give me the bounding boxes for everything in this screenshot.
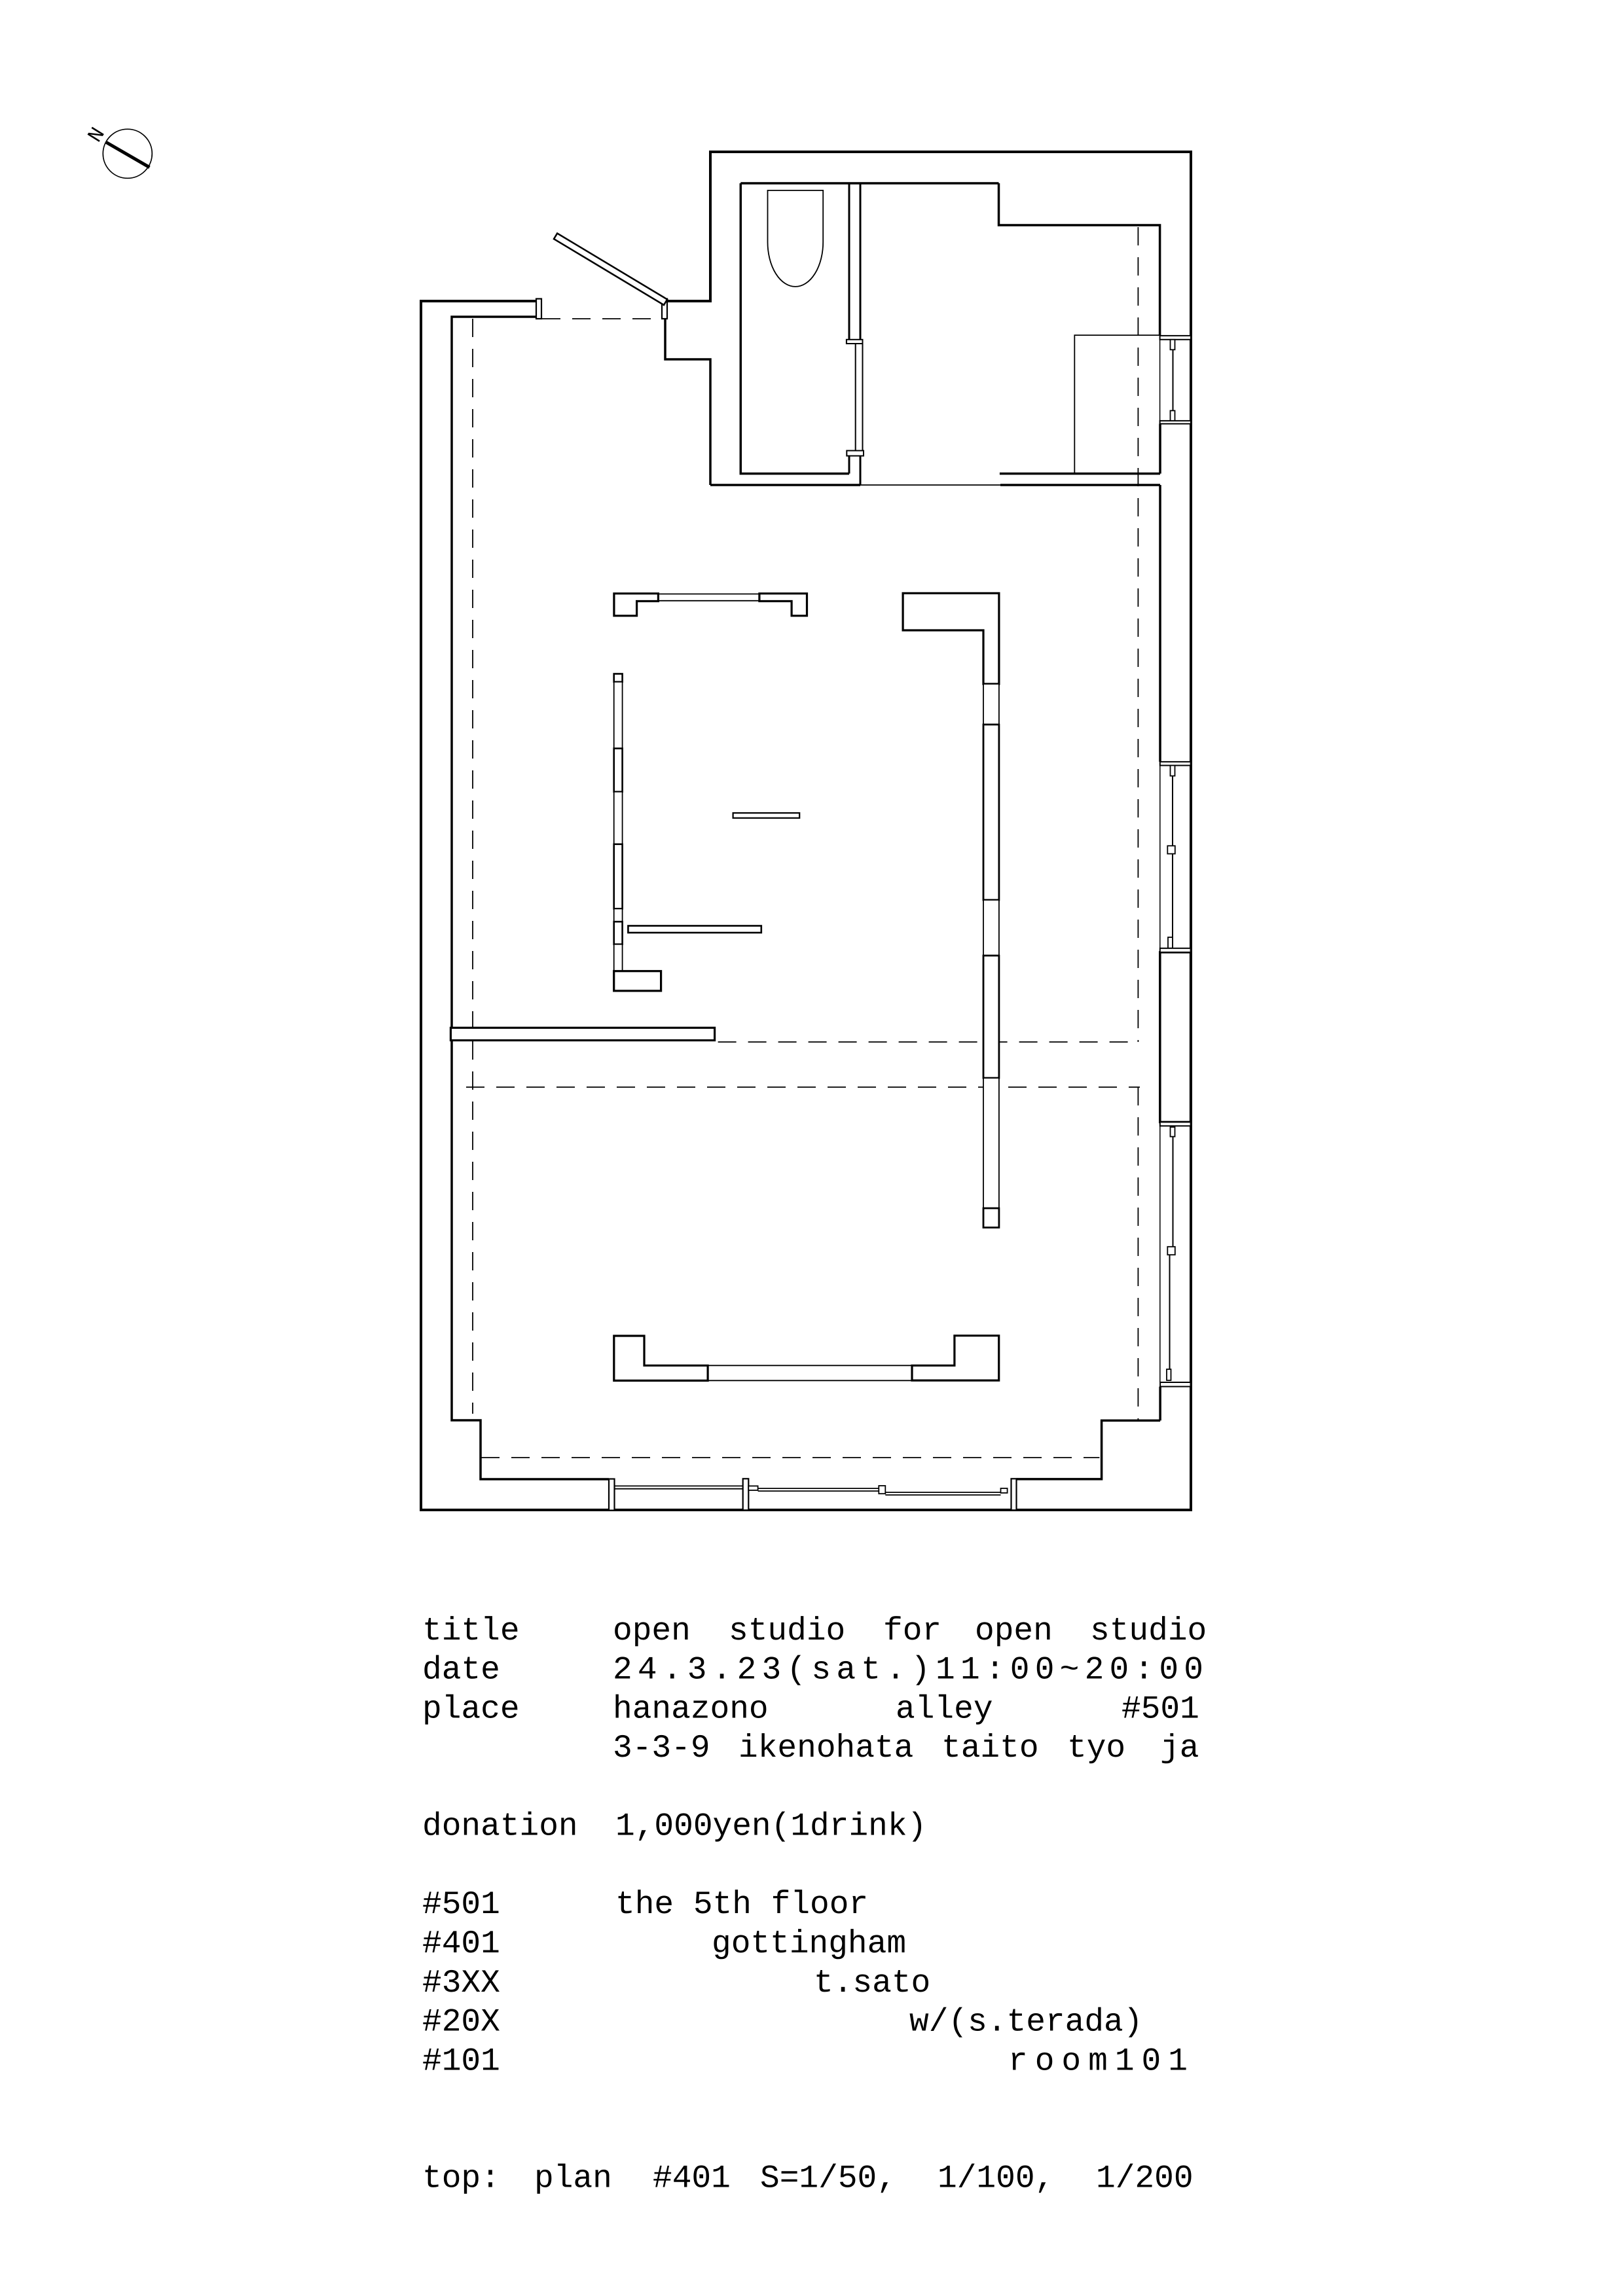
svg-text:w/(s.terada): w/(s.terada) xyxy=(909,2004,1142,2041)
svg-text:S=1/50,: S=1/50, xyxy=(760,2161,896,2197)
svg-text:place: place xyxy=(422,1691,520,1727)
svg-text:#501: #501 xyxy=(422,1886,500,1923)
svg-text:hanazono: hanazono xyxy=(613,1691,769,1727)
svg-text:open: open xyxy=(613,1613,691,1649)
svg-text:for: for xyxy=(883,1613,941,1649)
svg-text:room101: room101 xyxy=(1008,2043,1195,2079)
svg-text:the 5th floor: the 5th floor xyxy=(615,1886,868,1923)
svg-text:3-3-9: 3-3-9 xyxy=(613,1730,710,1767)
svg-text:top:: top: xyxy=(422,2161,500,2197)
svg-text:title: title xyxy=(422,1613,520,1649)
svg-text:gottingham: gottingham xyxy=(712,1926,906,1962)
svg-text:#20X: #20X xyxy=(422,2004,500,2041)
svg-text:taito: taito xyxy=(941,1730,1039,1767)
svg-text:plan: plan xyxy=(534,2161,612,2197)
svg-text:#3XX: #3XX xyxy=(422,1965,500,2001)
svg-text:tyo: tyo xyxy=(1067,1730,1125,1767)
svg-text:studio: studio xyxy=(1090,1613,1207,1649)
svg-text:1,000yen(1drink): 1,000yen(1drink) xyxy=(615,1808,926,1845)
svg-text:date: date xyxy=(422,1652,500,1689)
svg-text:donation: donation xyxy=(422,1808,578,1845)
svg-text:alley: alley xyxy=(896,1691,993,1727)
svg-text:1/100,: 1/100, xyxy=(938,2161,1054,2197)
svg-text:#401: #401 xyxy=(422,1926,500,1962)
svg-text:#401: #401 xyxy=(653,2161,731,2197)
svg-text:t.sato: t.sato xyxy=(814,1965,930,2001)
svg-text:#101: #101 xyxy=(422,2043,500,2079)
svg-text:ja: ja xyxy=(1160,1730,1199,1767)
svg-text:ikenohata: ikenohata xyxy=(739,1730,913,1767)
svg-text:open: open xyxy=(975,1613,1053,1649)
svg-text:studio: studio xyxy=(729,1613,845,1649)
svg-text:1/200: 1/200 xyxy=(1096,2161,1194,2197)
svg-text:#501: #501 xyxy=(1122,1691,1199,1727)
